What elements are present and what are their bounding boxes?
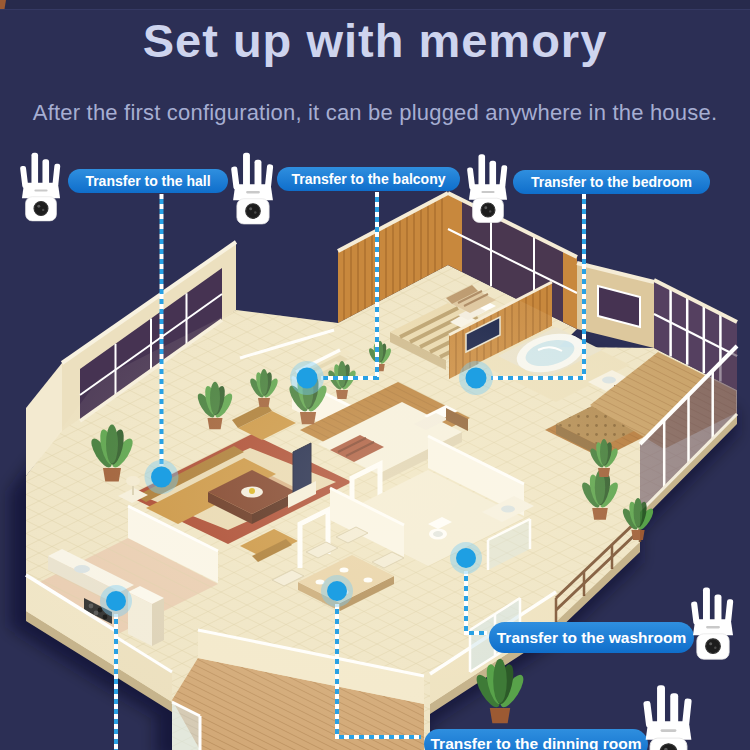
page-title: Set up with memory xyxy=(0,13,750,68)
bathroom-wall xyxy=(577,263,654,348)
wifi-repeater-device xyxy=(19,146,63,224)
callout-pill-washroom: Transfer to the washroom xyxy=(489,622,694,653)
wifi-repeater-device xyxy=(689,583,737,660)
placement-dot-washroom xyxy=(450,542,482,574)
wifi-repeater-device xyxy=(641,680,696,750)
callout-pill-bedroom: Transfer to the bedroom xyxy=(513,170,710,194)
placement-dot-dinning xyxy=(321,575,353,607)
wifi-repeater-device xyxy=(466,148,510,225)
callout-pill-dinning: Transfer to the dinning room xyxy=(424,729,648,750)
wifi-repeater-device xyxy=(230,148,276,225)
placement-dot-hall xyxy=(145,460,179,494)
placement-dot-kitchen xyxy=(100,585,132,617)
page-subtitle: After the first configuration, it can be… xyxy=(0,100,750,126)
promo-image: Set up with memory After the first confi… xyxy=(0,0,750,750)
placement-dot-bedroom xyxy=(459,361,493,395)
callout-pill-hall: Transfer to the hall xyxy=(68,169,228,193)
callout-pill-balcony: Transfer to the balcony xyxy=(277,167,460,191)
placement-dot-balcony xyxy=(290,361,324,395)
